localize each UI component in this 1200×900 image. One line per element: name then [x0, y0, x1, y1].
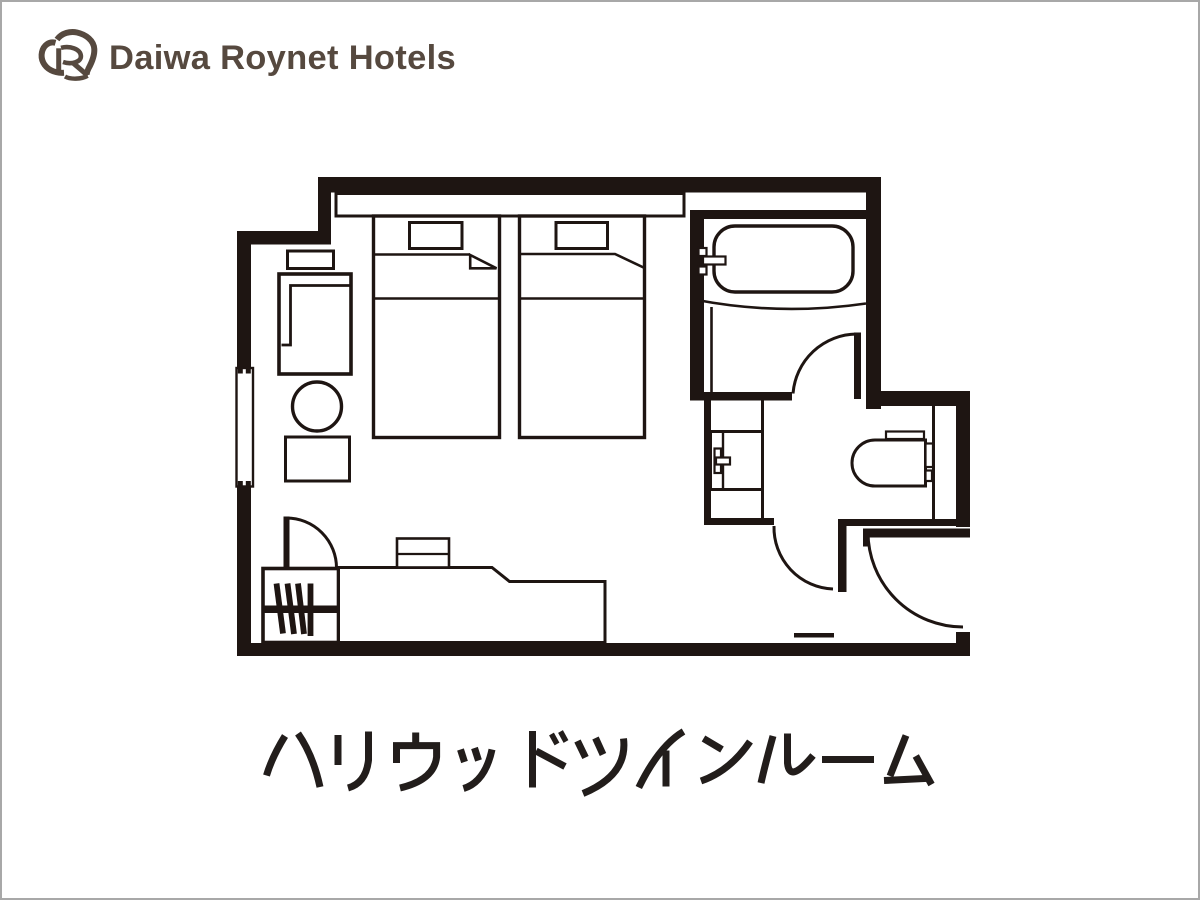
svg-text:Daiwa Roynet Hotels: Daiwa Roynet Hotels [109, 39, 456, 77]
